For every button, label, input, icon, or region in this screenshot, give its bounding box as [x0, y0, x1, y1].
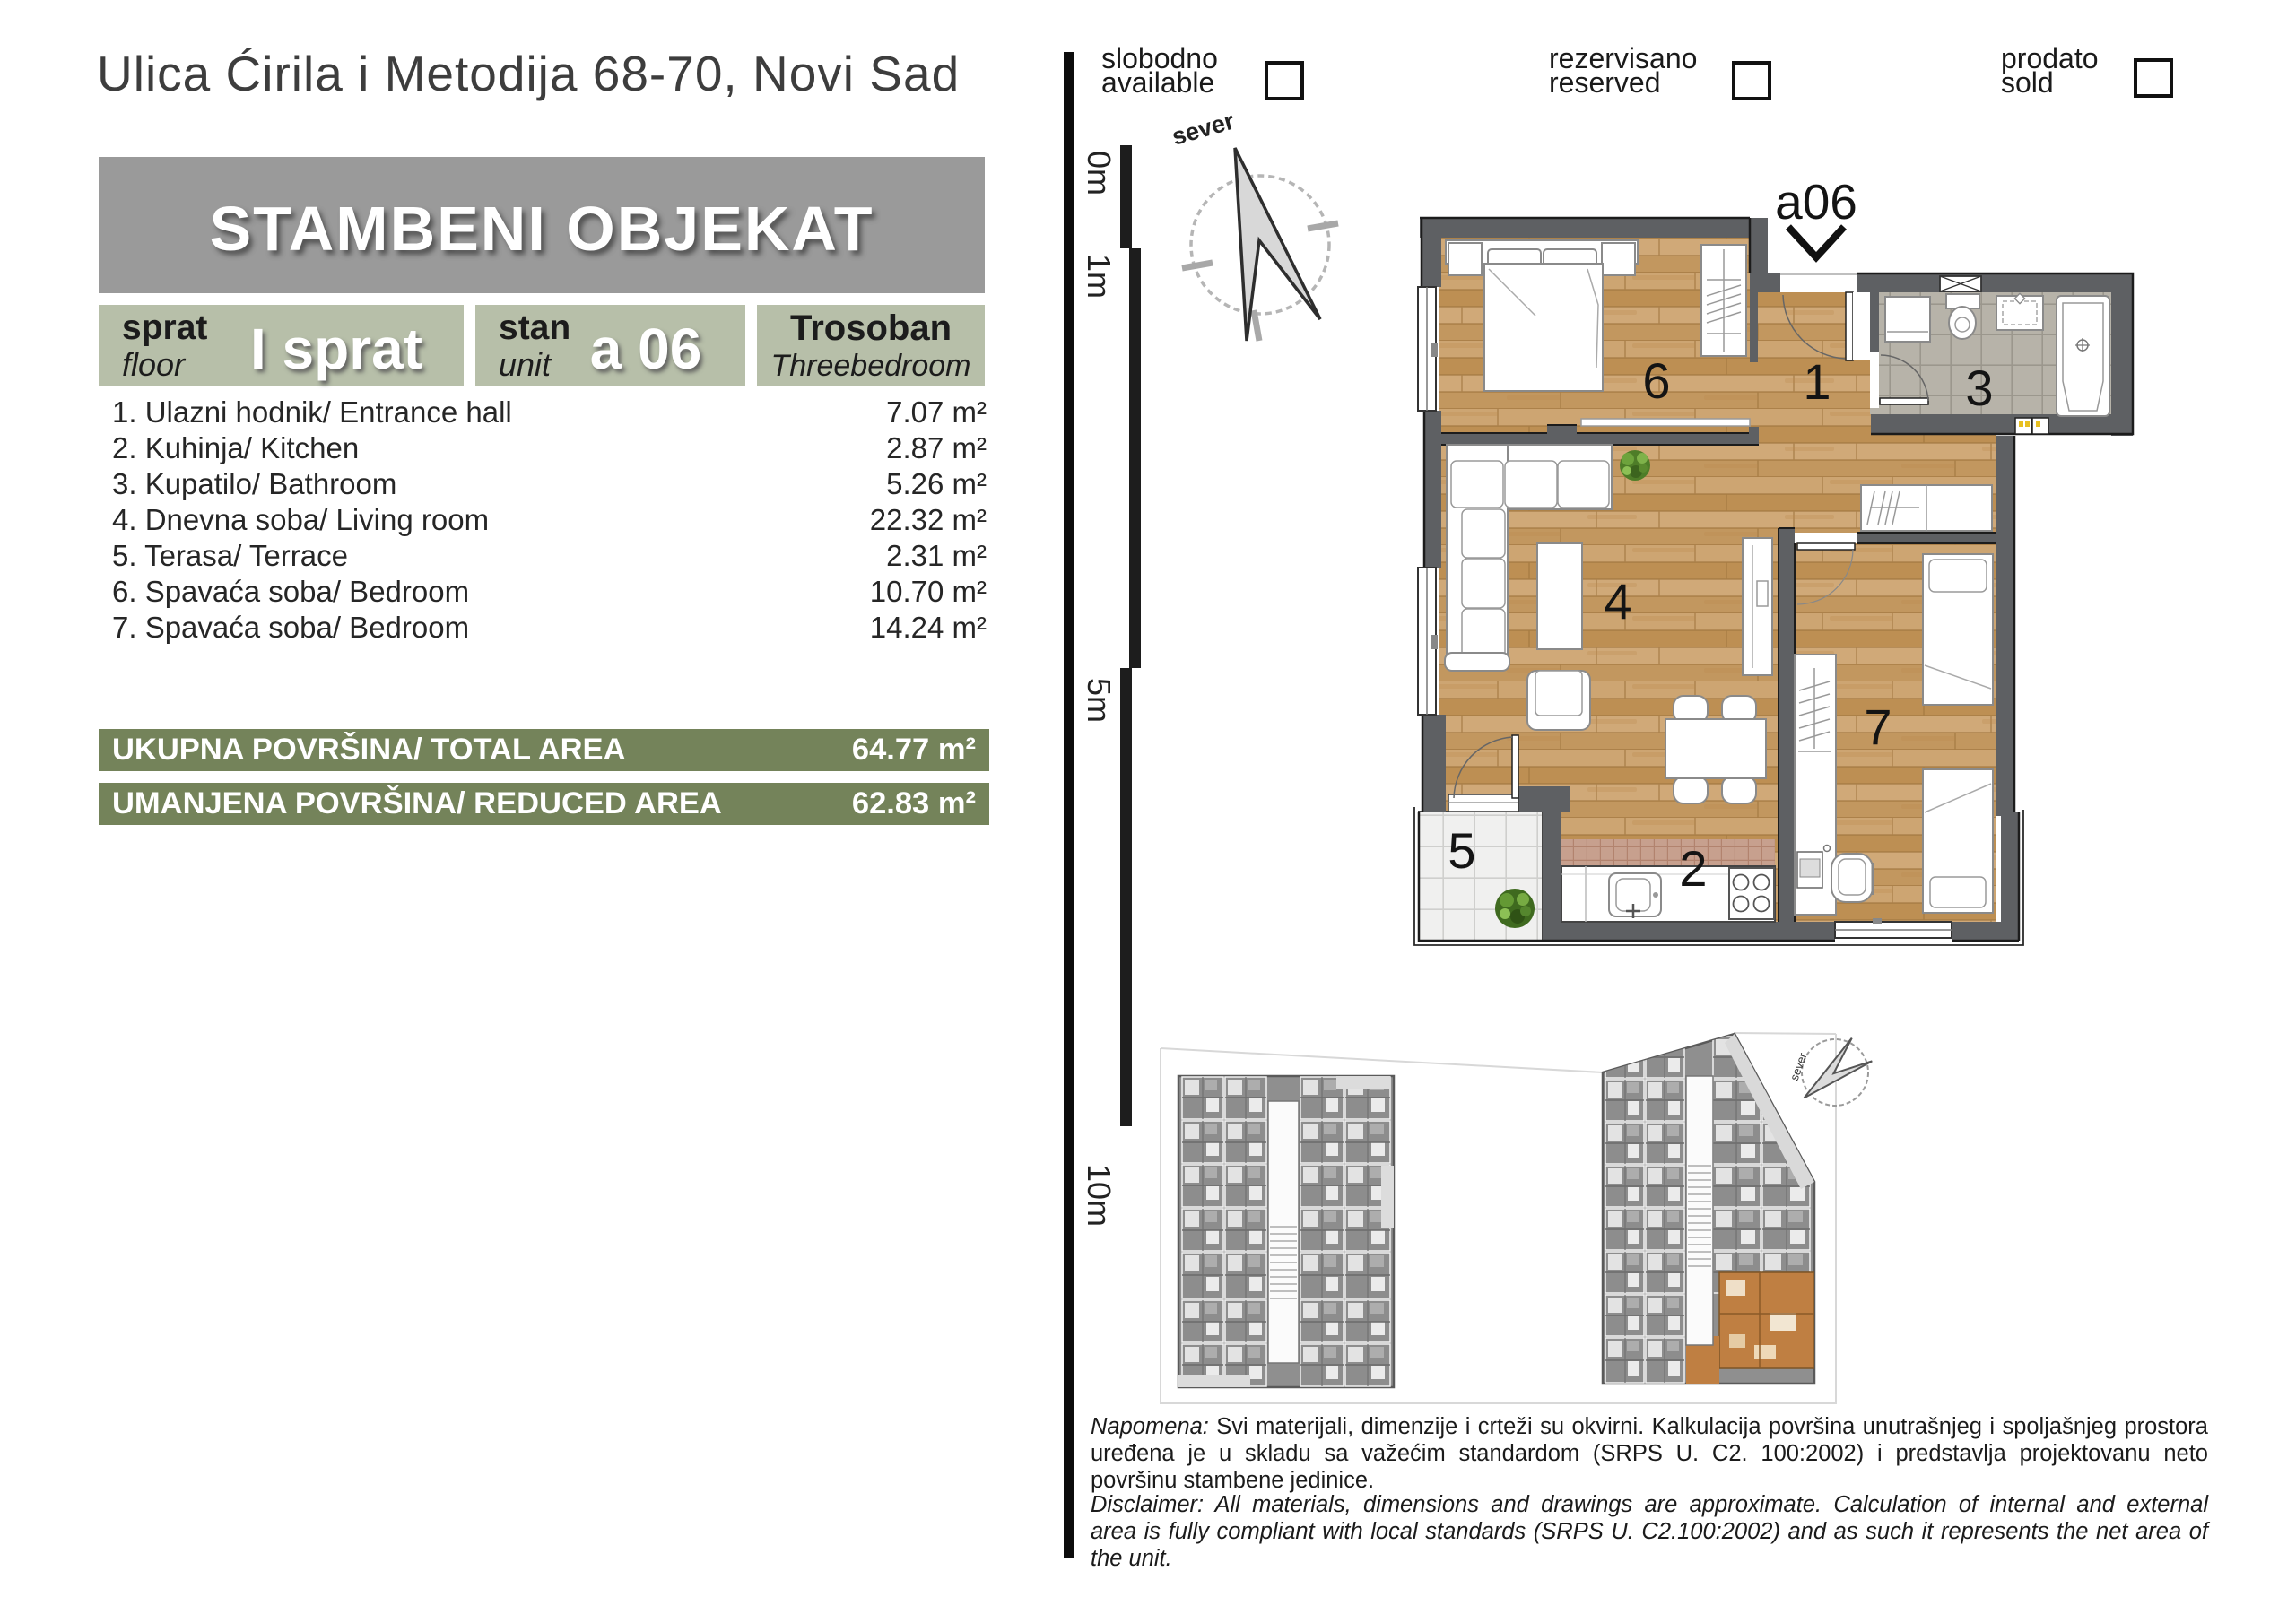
svg-text:3: 3 [1965, 360, 1993, 416]
svg-text:1: 1 [1803, 353, 1831, 410]
svg-text:5: 5 [1448, 822, 1475, 879]
svg-text:7: 7 [1864, 699, 1892, 755]
svg-text:sever: sever [1169, 107, 1238, 150]
svg-text:a06: a06 [1775, 174, 1857, 230]
svg-text:4: 4 [1604, 573, 1631, 629]
svg-text:10m: 10m [1081, 1164, 1118, 1227]
svg-text:0m: 0m [1081, 151, 1118, 195]
svg-text:6: 6 [1642, 352, 1670, 409]
svg-text:2: 2 [1679, 840, 1707, 897]
svg-text:5m: 5m [1081, 678, 1118, 723]
svg-text:sever: sever [1787, 1050, 1810, 1082]
svg-text:1m: 1m [1081, 254, 1118, 299]
